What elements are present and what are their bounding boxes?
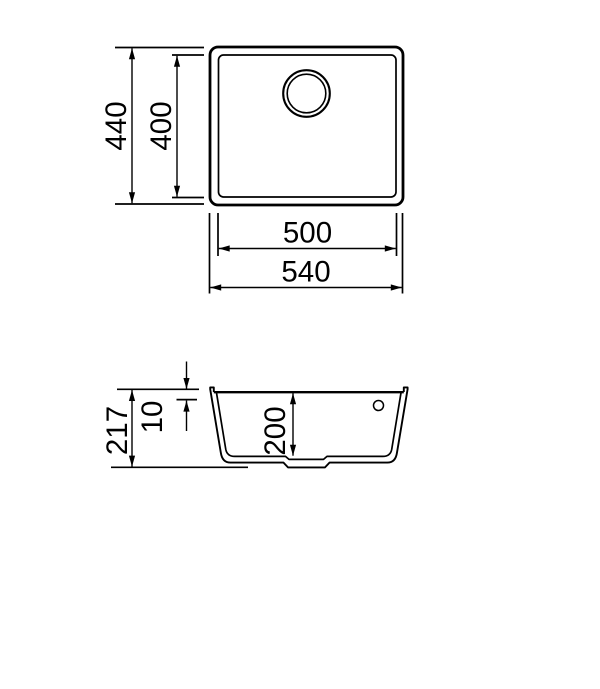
dim-inner-height: 400 [145,55,204,198]
dim-label-outer-height: 440 [100,101,133,150]
dim-label-total-height: 217 [101,406,134,455]
dim-label-inner-width: 500 [283,217,332,250]
drain-inner-circle [287,74,326,113]
dim-label-bowl-depth: 200 [259,406,292,455]
section-view: 217 10 200 [101,362,408,468]
dim-rim-height: 10 [136,362,197,434]
drain-outer-circle [283,70,330,117]
dim-inner-width: 500 [218,213,397,256]
dim-label-rim-height: 10 [136,401,169,434]
drain-hole [283,70,330,117]
top-view: 440 400 500 540 [100,47,403,294]
dim-total-height: 217 [101,389,248,467]
sink-section-outer-contour [210,387,407,467]
overflow-hole-circle [374,401,384,411]
sink-inner-edge [219,55,397,197]
dim-label-outer-width: 540 [281,256,330,289]
sink-section-inner-contour [216,392,401,459]
dim-label-inner-height: 400 [145,101,178,150]
sink-technical-drawing: 440 400 500 540 [0,0,600,689]
dim-bowl-depth: 200 [259,393,293,456]
